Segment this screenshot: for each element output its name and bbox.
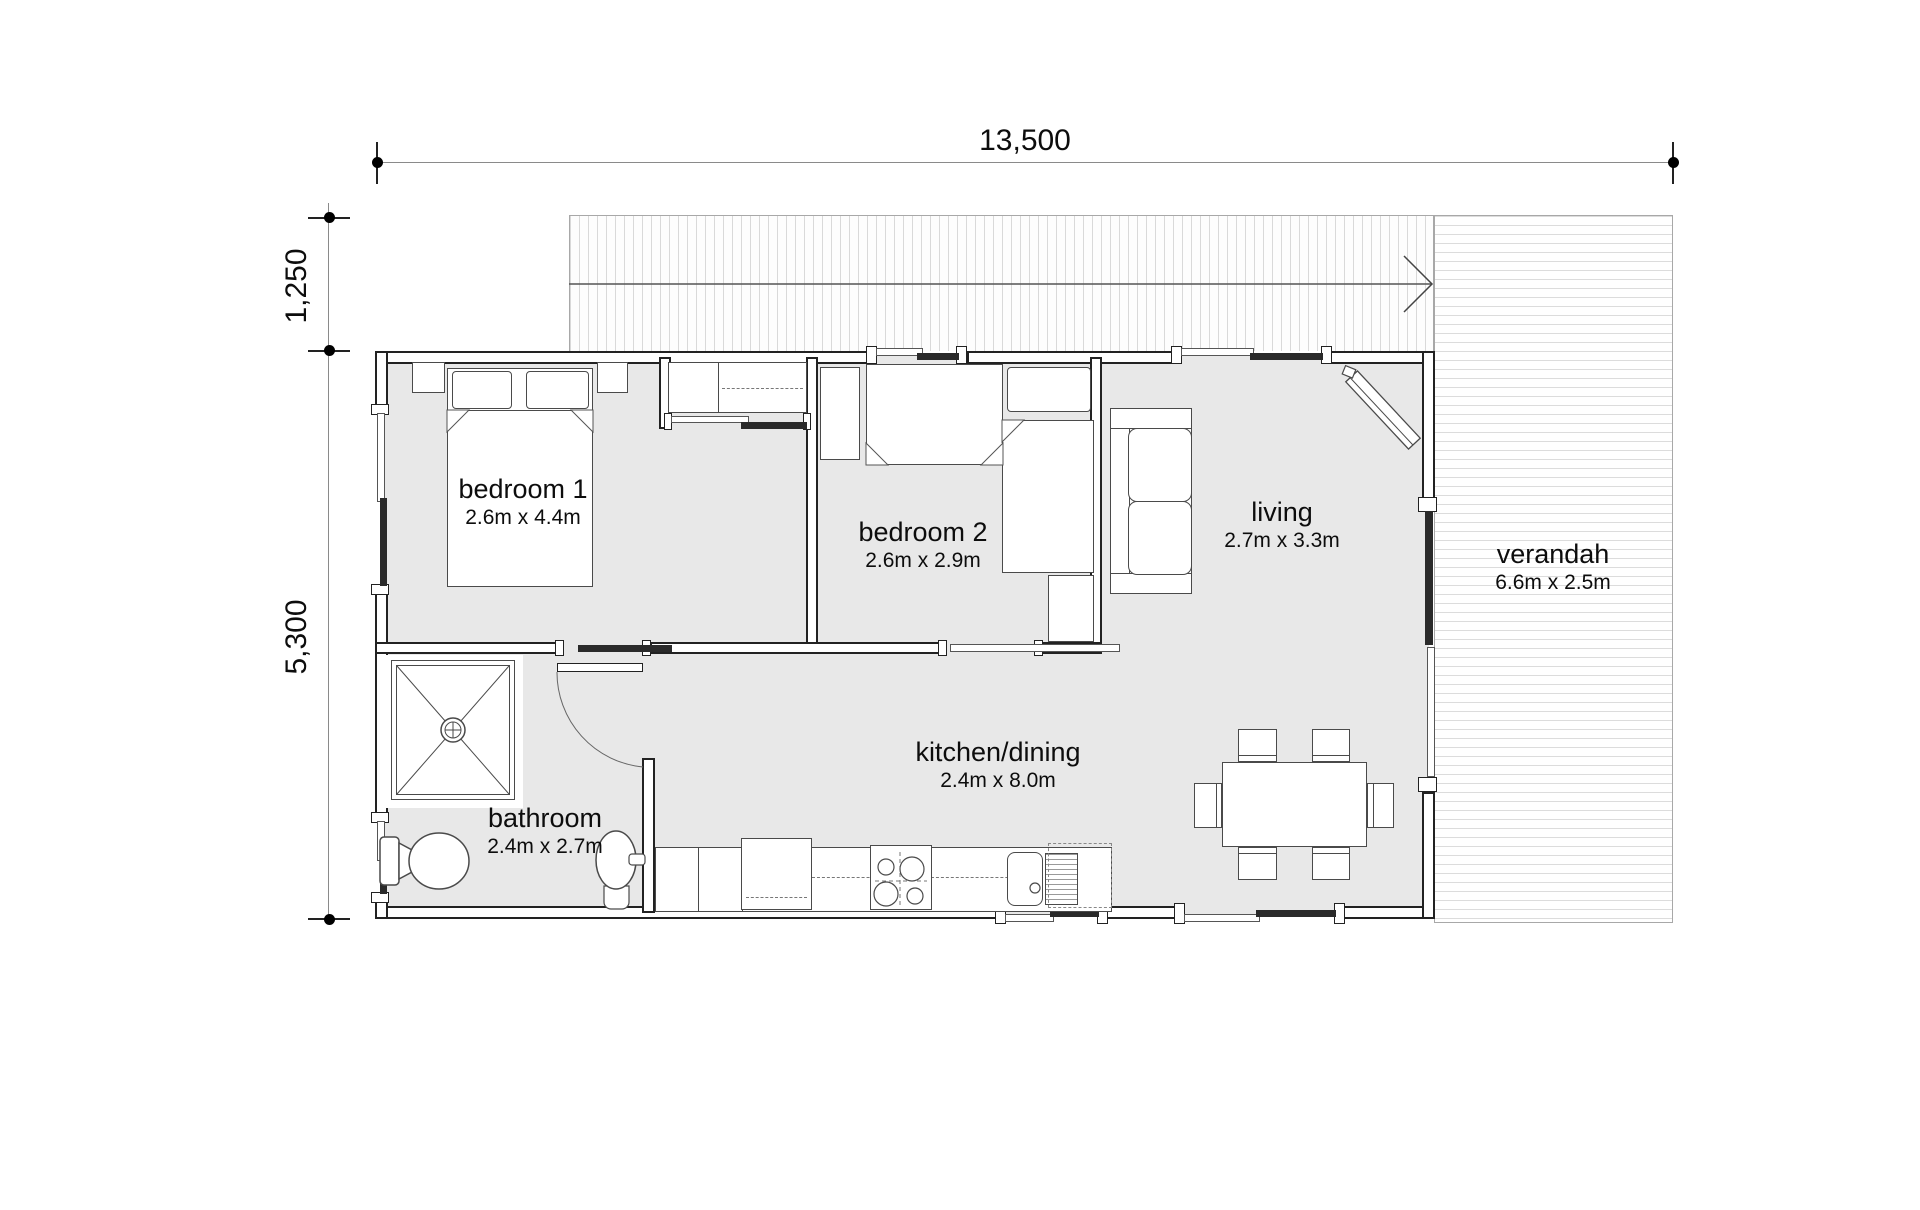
room-name: kitchen/dining (915, 737, 1080, 767)
room-name: bathroom (488, 803, 602, 833)
room-name: bedroom 2 (858, 517, 987, 547)
tv-unit (1338, 362, 1421, 449)
room-size: 2.6m x 4.4m (465, 504, 581, 531)
bed-fold (866, 443, 888, 465)
bed-fold (571, 410, 593, 432)
room-label-living: living 2.7m x 3.3m (1152, 497, 1412, 554)
room-size: 2.4m x 8.0m (940, 767, 1056, 794)
burner-icon (878, 859, 894, 875)
burner-icon (900, 857, 924, 881)
toilet-cistern (380, 837, 399, 885)
bed-fold (981, 443, 1003, 465)
drawing-details-overlay (0, 0, 1920, 1210)
room-size: 6.6m x 2.5m (1495, 569, 1611, 596)
room-size: 2.7m x 3.3m (1224, 527, 1340, 554)
sink-drain-icon (1030, 883, 1040, 893)
room-name: verandah (1497, 539, 1610, 569)
bed-fold (447, 410, 469, 432)
room-name: bedroom 1 (458, 474, 587, 504)
door-swing-arc (557, 672, 643, 767)
floor-plan: 13,500 1,250 5,300 (0, 0, 1920, 1210)
room-label-bedroom2: bedroom 2 2.6m x 2.9m (793, 517, 1053, 574)
room-size: 2.6m x 2.9m (865, 547, 981, 574)
room-name: living (1251, 497, 1313, 527)
room-label-kitchen-dining: kitchen/dining 2.4m x 8.0m (868, 737, 1128, 794)
burner-icon (907, 888, 923, 904)
burner-icon (874, 882, 898, 906)
room-label-verandah: verandah 6.6m x 2.5m (1423, 539, 1683, 596)
room-size: 2.4m x 2.7m (487, 833, 603, 860)
room-label-bedroom1: bedroom 1 2.6m x 4.4m (393, 474, 653, 531)
bed-fold (1002, 420, 1024, 442)
room-label-bathroom: bathroom 2.4m x 2.7m (415, 803, 675, 860)
